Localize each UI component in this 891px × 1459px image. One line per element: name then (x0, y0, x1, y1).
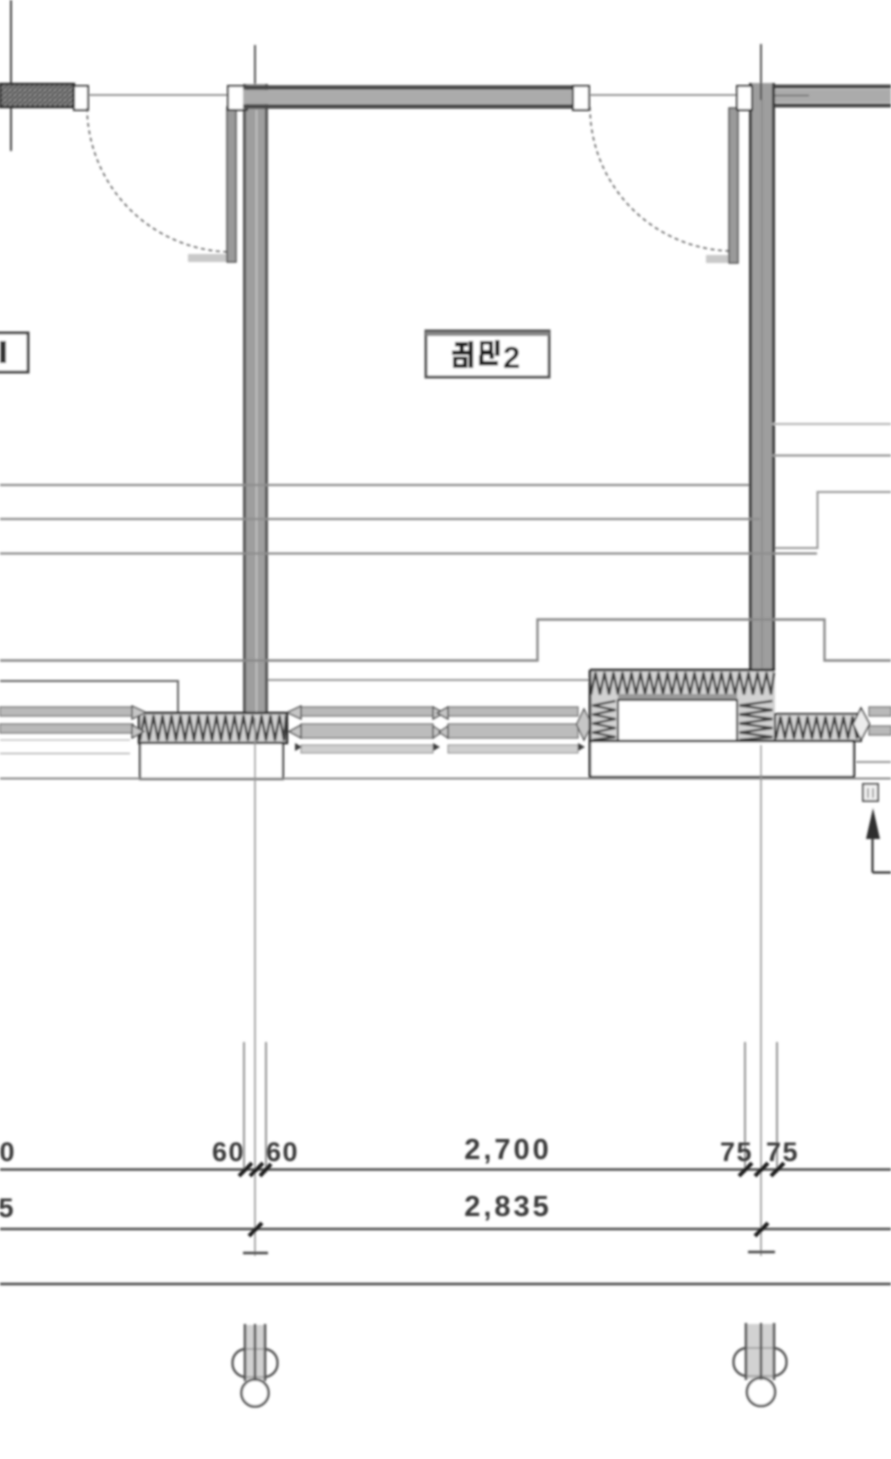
svg-text:2,700: 2,700 (464, 1134, 552, 1166)
svg-text:75: 75 (766, 1137, 799, 1167)
svg-text:2,835: 2,835 (464, 1191, 552, 1223)
svg-text:2: 2 (503, 340, 520, 375)
svg-text:75: 75 (720, 1137, 753, 1167)
svg-text:60: 60 (212, 1137, 245, 1167)
svg-text:,000: ,000 (0, 1137, 16, 1167)
svg-text:60: 60 (266, 1137, 299, 1167)
svg-text:,835: ,835 (0, 1193, 15, 1223)
